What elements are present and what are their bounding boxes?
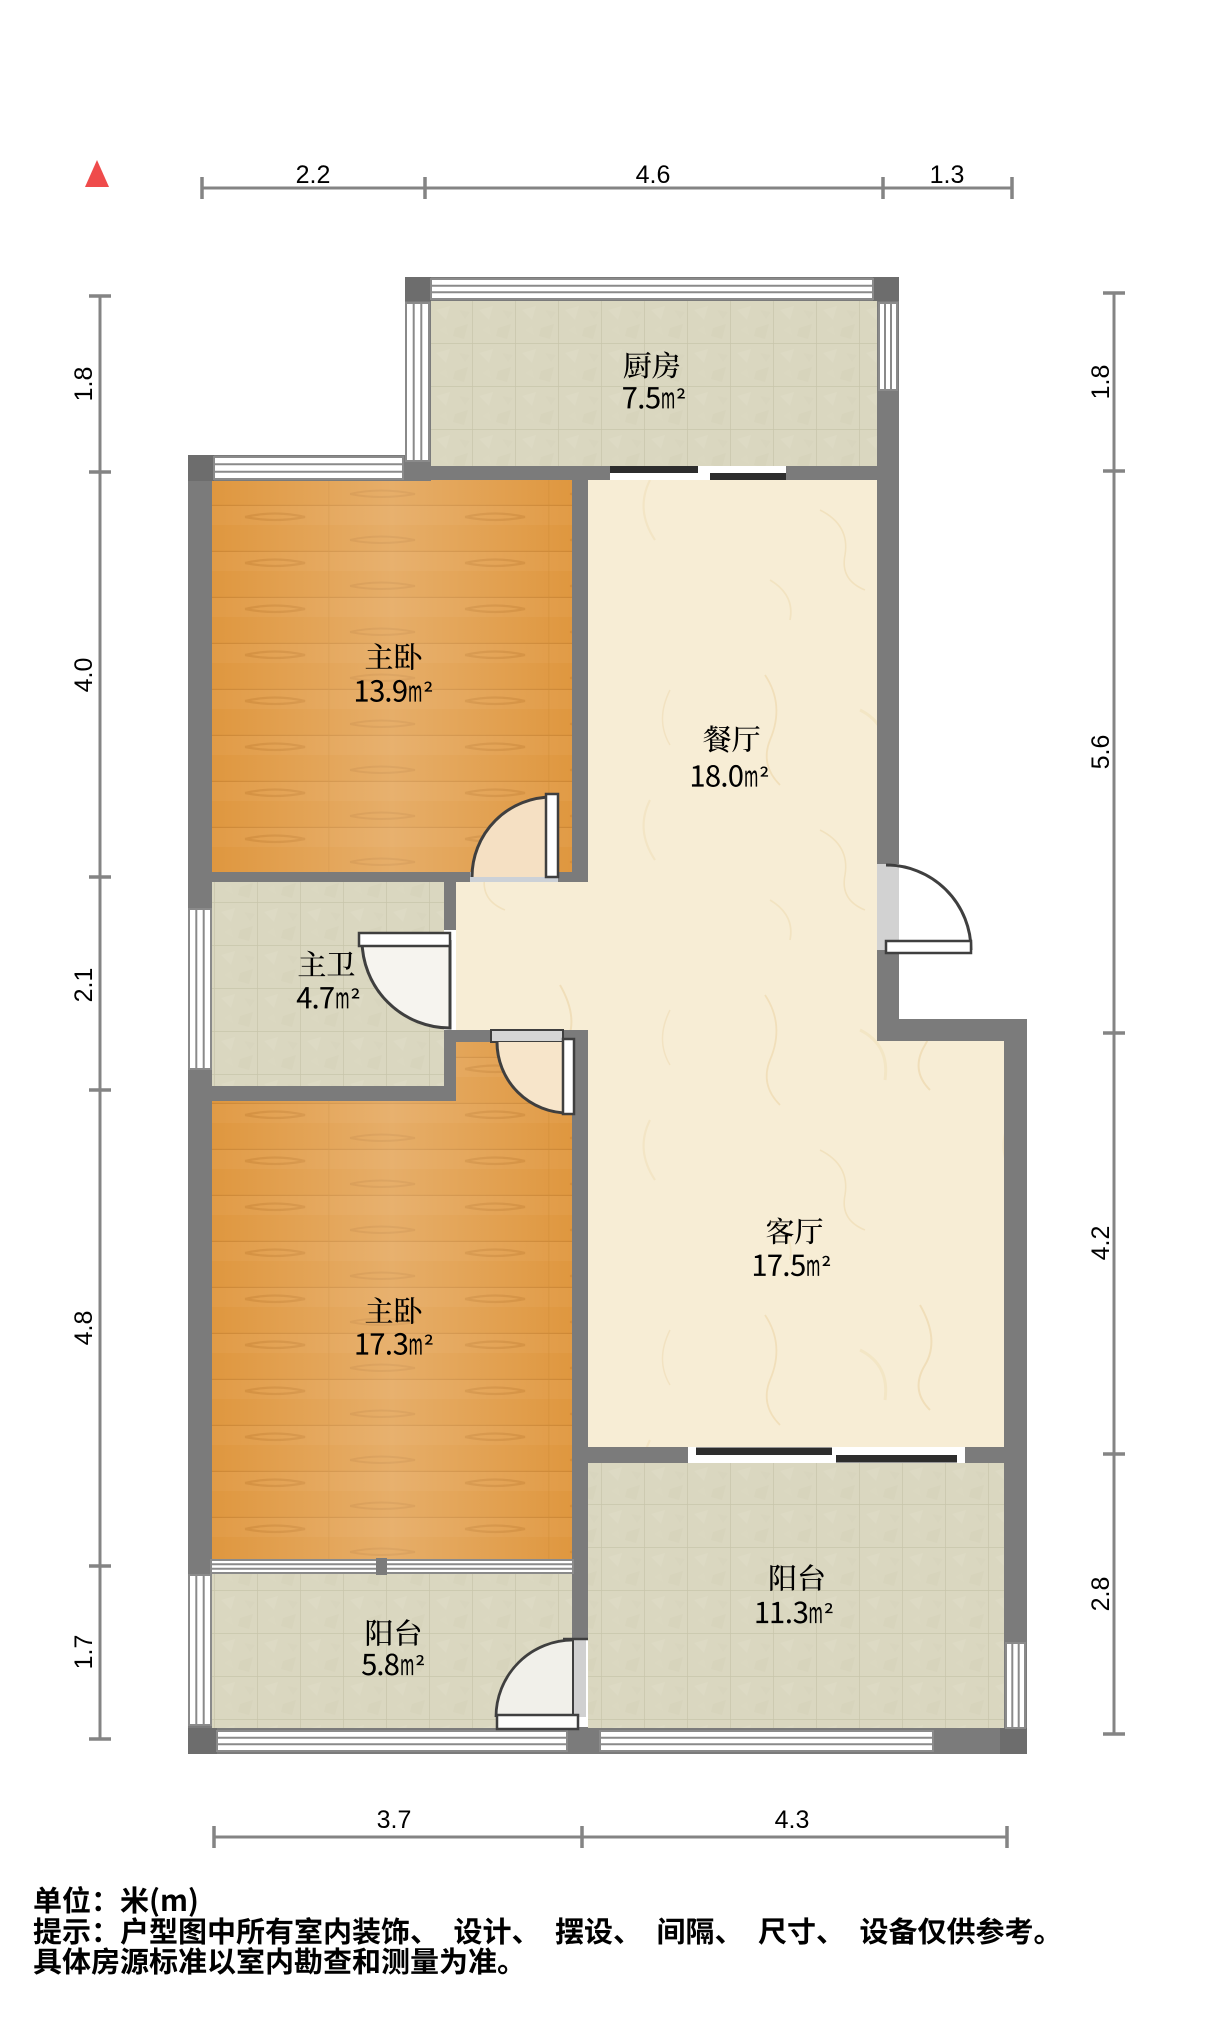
- svg-text:4.6: 4.6: [636, 161, 671, 189]
- svg-text:4.8: 4.8: [70, 1311, 98, 1346]
- svg-text:1.8: 1.8: [1087, 365, 1115, 400]
- svg-text:2.2: 2.2: [296, 161, 331, 189]
- svg-text:5.6: 5.6: [1087, 735, 1115, 770]
- svg-text:4.0: 4.0: [70, 658, 98, 693]
- svg-text:4.3: 4.3: [775, 1806, 810, 1834]
- svg-text:1.3: 1.3: [930, 161, 965, 189]
- svg-text:3.7: 3.7: [377, 1806, 412, 1834]
- svg-text:2.8: 2.8: [1087, 1577, 1115, 1612]
- svg-text:1.8: 1.8: [70, 367, 98, 402]
- svg-text:4.2: 4.2: [1087, 1226, 1115, 1261]
- svg-text:2.1: 2.1: [70, 968, 98, 1003]
- svg-text:1.7: 1.7: [70, 1635, 98, 1670]
